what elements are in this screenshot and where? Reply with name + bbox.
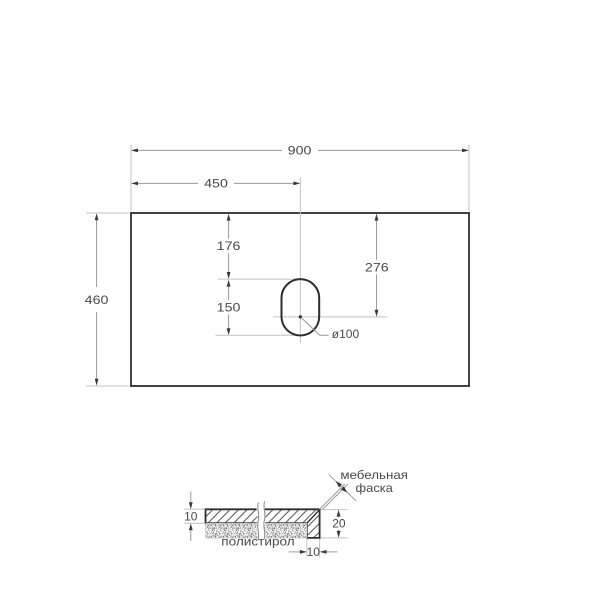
- svg-text:276: 276: [365, 260, 389, 274]
- svg-text:полистирол: полистирол: [221, 535, 295, 549]
- svg-text:ø100: ø100: [332, 327, 360, 341]
- svg-text:450: 450: [204, 177, 228, 191]
- svg-text:фаска: фаска: [356, 481, 394, 495]
- svg-text:150: 150: [217, 301, 241, 315]
- svg-text:20: 20: [332, 517, 346, 531]
- svg-text:10: 10: [184, 509, 198, 523]
- svg-text:176: 176: [217, 239, 241, 253]
- svg-text:460: 460: [85, 293, 109, 307]
- svg-text:10: 10: [307, 545, 321, 559]
- svg-text:900: 900: [288, 144, 312, 158]
